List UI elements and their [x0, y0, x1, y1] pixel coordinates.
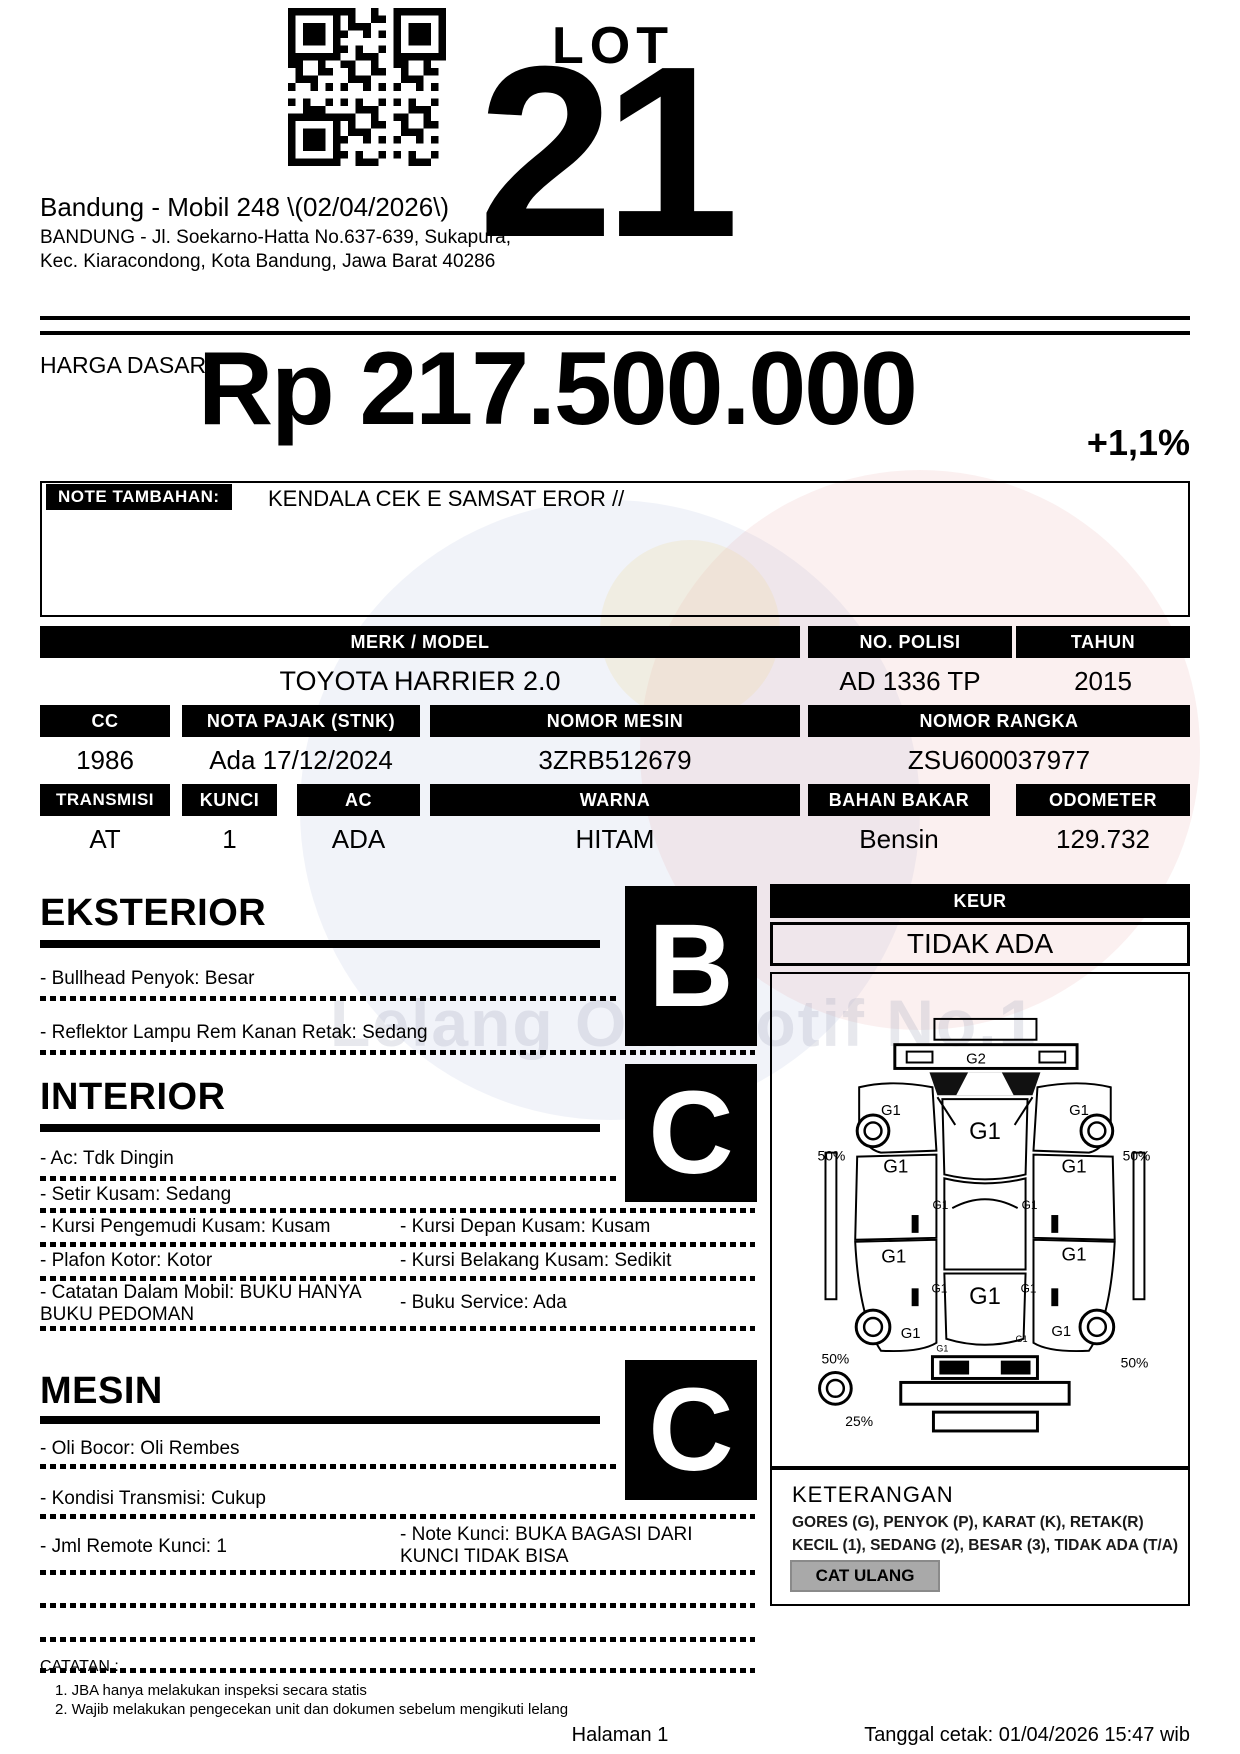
interior-rule	[40, 1124, 600, 1132]
eksterior-title: EKSTERIOR	[40, 892, 266, 935]
dotted-line	[40, 996, 618, 1001]
value-nomor-rangka: ZSU600037977	[808, 745, 1190, 776]
dotted-line	[40, 1603, 755, 1608]
dotted-line	[40, 1276, 755, 1281]
interior-item: - Ac: Tdk Dingin	[40, 1148, 174, 1170]
eksterior-grade: B	[625, 886, 757, 1046]
diagram-label-g1: G1	[883, 1155, 908, 1176]
diagram-label-g1: G1	[1062, 1244, 1087, 1265]
note-label: NOTE TAMBAHAN:	[46, 484, 232, 510]
header-cc: CC	[40, 705, 170, 737]
header-nomor-rangka: NOMOR RANGKA	[808, 705, 1190, 737]
diagram-label-g1: G1	[881, 1246, 906, 1267]
header-ac: AC	[297, 784, 420, 816]
catatan-item: 1. JBA hanya melakukan inspeksi secara s…	[55, 1682, 367, 1699]
diagram-box: G2 G1 G1 G1 50% 50% G1 G1 G1 G1 G1 G1 G1…	[770, 972, 1190, 1606]
auction-title: Bandung - Mobil 248 \(02/04/2026\)	[40, 192, 449, 223]
interior-item: - Buku Service: Ada	[400, 1292, 756, 1314]
diagram-label-50pct: 50%	[818, 1148, 846, 1164]
header-no-polisi: NO. POLISI	[808, 626, 1012, 658]
dotted-line	[40, 1668, 755, 1673]
value-warna: HITAM	[430, 824, 800, 855]
interior-item: - Setir Kusam: Sedang	[40, 1184, 231, 1206]
eksterior-rule	[40, 940, 600, 948]
dotted-line	[40, 1050, 755, 1055]
mesin-item: - Jml Remote Kunci: 1	[40, 1536, 227, 1558]
dotted-line	[40, 1176, 618, 1181]
diagram-label-g1: G1	[1062, 1155, 1087, 1176]
header-transmisi: TRANSMISI	[40, 784, 170, 816]
mesin-item: - Oli Bocor: Oli Rembes	[40, 1438, 240, 1460]
dotted-line	[40, 1570, 755, 1575]
diagram-label-g1-small: G1	[1016, 1334, 1028, 1344]
diagram-label-50pct: 50%	[1121, 1355, 1149, 1371]
value-nomor-mesin: 3ZRB512679	[430, 745, 800, 776]
header-bahan-bakar: BAHAN BAKAR	[808, 784, 990, 816]
qr-code	[288, 8, 446, 166]
value-transmisi: AT	[40, 824, 170, 855]
value-merk-model: TOYOTA HARRIER 2.0	[40, 666, 800, 697]
diagram-label-g1-small: G1	[931, 1281, 947, 1295]
diagram-label-50pct: 50%	[1123, 1148, 1151, 1164]
keterangan-divider	[772, 1466, 1188, 1470]
dotted-line	[40, 1242, 755, 1247]
diagram-label-g1-small: G1	[1021, 1281, 1037, 1295]
address-line2: Kec. Kiaracondong, Kota Bandung, Jawa Ba…	[40, 251, 495, 273]
header-merk-model: MERK / MODEL	[40, 626, 800, 658]
mesin-grade: C	[625, 1360, 757, 1500]
interior-item: - Catatan Dalam Mobil: BUKU HANYA BUKU P…	[40, 1282, 390, 1326]
dotted-line	[40, 1514, 755, 1519]
header-kunci: KUNCI	[182, 784, 277, 816]
lot-number: 21	[478, 36, 729, 268]
address-line1: BANDUNG - Jl. Soekarno-Hatta No.637-639,…	[40, 227, 511, 249]
value-kunci: 1	[182, 824, 277, 855]
interior-grade: C	[625, 1064, 757, 1202]
auction-lot-sheet: Lelang Otomotif No.1 LOT 21 Bandung - Mo…	[0, 0, 1240, 1754]
cat-ulang-badge: CAT ULANG	[790, 1560, 940, 1592]
diagram-label-g1: G1	[1069, 1103, 1089, 1119]
interior-title: INTERIOR	[40, 1076, 226, 1119]
keterangan-line2: KECIL (1), SEDANG (2), BESAR (3), TIDAK …	[792, 1537, 1178, 1555]
print-date: Tanggal cetak: 01/04/2026 15:47 wib	[790, 1724, 1190, 1747]
interior-item: - Kursi Belakang Kusam: Sedikit	[400, 1250, 756, 1272]
header-nota-pajak: NOTA PAJAK (STNK)	[182, 705, 420, 737]
dotted-line	[40, 1637, 755, 1642]
value-nota-pajak: Ada 17/12/2024	[182, 745, 420, 776]
diagram-label-g1-small: G1	[932, 1198, 948, 1212]
header-odometer: ODOMETER	[1016, 784, 1190, 816]
value-tahun: 2015	[1016, 666, 1190, 697]
diagram-label-g1: G1	[901, 1326, 921, 1342]
price-label: HARGA DASAR :	[40, 352, 219, 379]
mesin-item: - Kondisi Transmisi: Cukup	[40, 1488, 266, 1510]
dotted-line	[40, 1464, 618, 1469]
price-change: +1,1%	[990, 422, 1190, 464]
eksterior-item: - Bullhead Penyok: Besar	[40, 968, 254, 990]
diagram-label-g1: G1	[969, 1118, 1001, 1145]
eksterior-item: - Reflektor Lampu Rem Kanan Retak: Sedan…	[40, 1022, 428, 1044]
diagram-label-g2: G2	[966, 1051, 986, 1067]
page-number: Halaman 1	[520, 1724, 720, 1747]
interior-item: - Kursi Pengemudi Kusam: Kusam	[40, 1216, 390, 1238]
diagram-label-50pct: 50%	[822, 1351, 850, 1367]
dotted-line	[40, 1326, 755, 1331]
keterangan-line1: GORES (G), PENYOK (P), KARAT (K), RETAK(…	[792, 1514, 1144, 1532]
interior-item: - Kursi Depan Kusam: Kusam	[400, 1216, 756, 1238]
diagram-label-g1: G1	[969, 1283, 1001, 1310]
note-text: KENDALA CEK E SAMSAT EROR //	[268, 486, 624, 512]
car-damage-diagram: G2 G1 G1 G1 50% 50% G1 G1 G1 G1 G1 G1 G1…	[772, 974, 1188, 1464]
diagram-label-25pct: 25%	[845, 1413, 873, 1429]
catatan-item: 2. Wajib melakukan pengecekan unit dan d…	[55, 1701, 568, 1718]
interior-item: - Plafon Kotor: Kotor	[40, 1250, 390, 1272]
mesin-title: MESIN	[40, 1370, 163, 1413]
header-nomor-mesin: NOMOR MESIN	[430, 705, 800, 737]
value-odometer: 129.732	[1016, 824, 1190, 855]
value-bahan-bakar: Bensin	[808, 824, 990, 855]
mesin-note-kunci: - Note Kunci: BUKA BAGASI DARI KUNCI TID…	[400, 1524, 750, 1568]
keterangan-title: KETERANGAN	[792, 1482, 954, 1508]
diagram-label-g1: G1	[1051, 1324, 1071, 1340]
keur-value: TIDAK ADA	[907, 928, 1053, 960]
header-warna: WARNA	[430, 784, 800, 816]
diagram-label-g1: G1	[881, 1103, 901, 1119]
value-no-polisi: AD 1336 TP	[808, 666, 1012, 697]
catatan-label: CATATAN :	[40, 1658, 119, 1676]
diagram-label-g1-small: G1	[936, 1344, 948, 1354]
keur-value-box: TIDAK ADA	[770, 922, 1190, 966]
value-ac: ADA	[297, 824, 420, 855]
value-cc: 1986	[40, 745, 170, 776]
mesin-rule	[40, 1416, 600, 1424]
header-tahun: TAHUN	[1016, 626, 1190, 658]
dotted-line	[40, 1208, 755, 1213]
diagram-label-g1-small: G1	[1022, 1198, 1038, 1212]
price-amount: Rp 217.500.000	[198, 330, 916, 449]
keur-header: KEUR	[770, 884, 1190, 918]
